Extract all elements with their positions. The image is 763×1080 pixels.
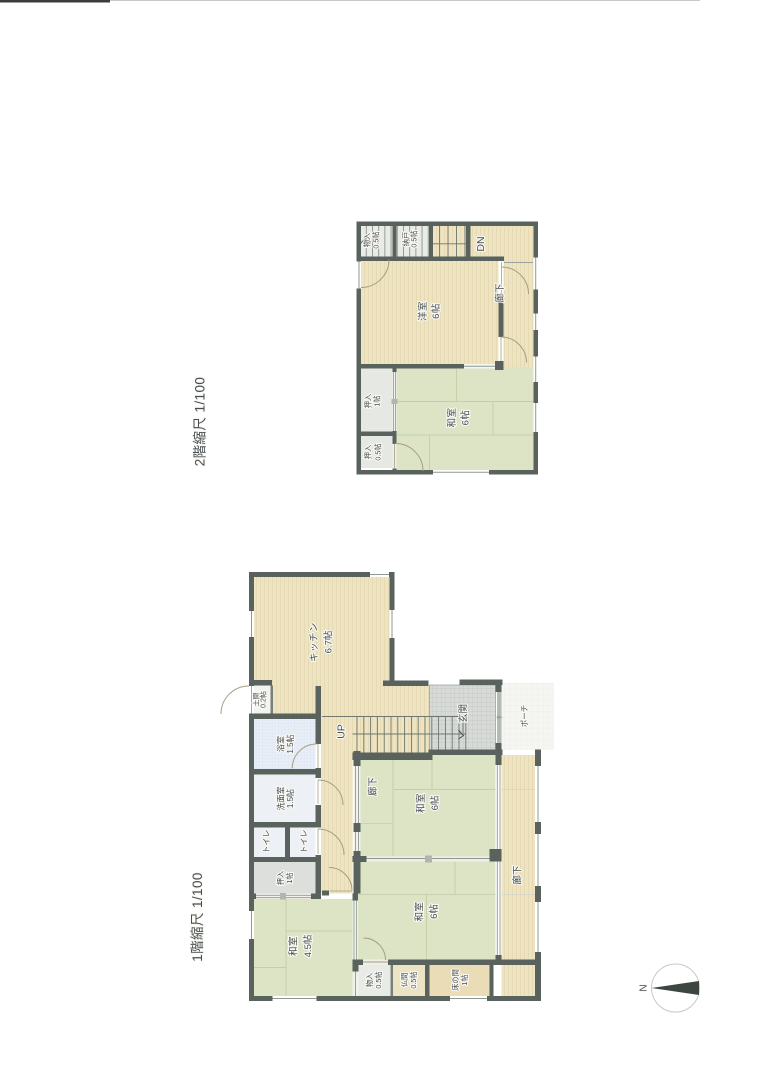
svg-text:和室: 和室 [446, 407, 458, 427]
svg-text:和室: 和室 [414, 901, 426, 921]
svg-text:0.5帖: 0.5帖 [410, 230, 419, 247]
svg-text:物入: 物入 [365, 973, 374, 987]
svg-text:和室: 和室 [288, 936, 300, 956]
svg-text:0.5帖: 0.5帖 [374, 971, 383, 988]
svg-text:6帖: 6帖 [428, 904, 440, 919]
svg-text:浴室: 浴室 [276, 736, 286, 752]
svg-text:1.5帖: 1.5帖 [285, 734, 295, 753]
svg-text:1帖: 1帖 [285, 872, 294, 883]
svg-text:6.7帖: 6.7帖 [323, 630, 335, 653]
svg-text:1帖: 1帖 [460, 974, 469, 985]
svg-text:廊下: 廊下 [494, 283, 506, 302]
svg-text:床の間: 床の間 [451, 969, 460, 991]
svg-text:0.5帖: 0.5帖 [372, 231, 381, 248]
svg-text:0.2帖: 0.2帖 [259, 691, 268, 708]
svg-text:トイレ: トイレ [262, 830, 271, 854]
svg-text:0.5帖: 0.5帖 [409, 971, 418, 988]
svg-text:6帖: 6帖 [430, 303, 442, 319]
svg-text:DN: DN [475, 236, 487, 251]
svg-text:UP: UP [336, 724, 348, 739]
svg-text:トイレ: トイレ [300, 830, 309, 854]
svg-text:物入: 物入 [363, 233, 372, 247]
svg-text:4.5帖: 4.5帖 [302, 934, 314, 957]
svg-text:キッチン: キッチン [309, 622, 320, 662]
svg-text:6帖: 6帖 [429, 795, 441, 810]
svg-text:押入: 押入 [276, 871, 285, 885]
svg-text:1階縮尺 1/100: 1階縮尺 1/100 [190, 872, 205, 962]
svg-text:N: N [639, 984, 650, 991]
svg-text:玄関: 玄関 [458, 704, 470, 723]
svg-text:和室: 和室 [415, 793, 427, 813]
svg-text:押入: 押入 [364, 394, 373, 408]
svg-text:洋室: 洋室 [417, 301, 429, 321]
svg-text:0.5帖: 0.5帖 [374, 443, 383, 460]
svg-text:廊下: 廊下 [512, 865, 524, 884]
svg-text:1帖: 1帖 [373, 395, 382, 406]
svg-text:2階縮尺 1/100: 2階縮尺 1/100 [193, 377, 208, 467]
svg-text:6帖: 6帖 [460, 410, 472, 426]
svg-text:1.5帖: 1.5帖 [285, 789, 295, 808]
svg-text:仏間: 仏間 [400, 973, 409, 987]
svg-text:土間: 土間 [252, 693, 261, 707]
svg-text:押入: 押入 [364, 445, 373, 459]
svg-text:廊下: 廊下 [367, 777, 379, 796]
svg-text:洗面室: 洗面室 [276, 787, 286, 811]
svg-text:ポーチ: ポーチ [520, 705, 529, 728]
